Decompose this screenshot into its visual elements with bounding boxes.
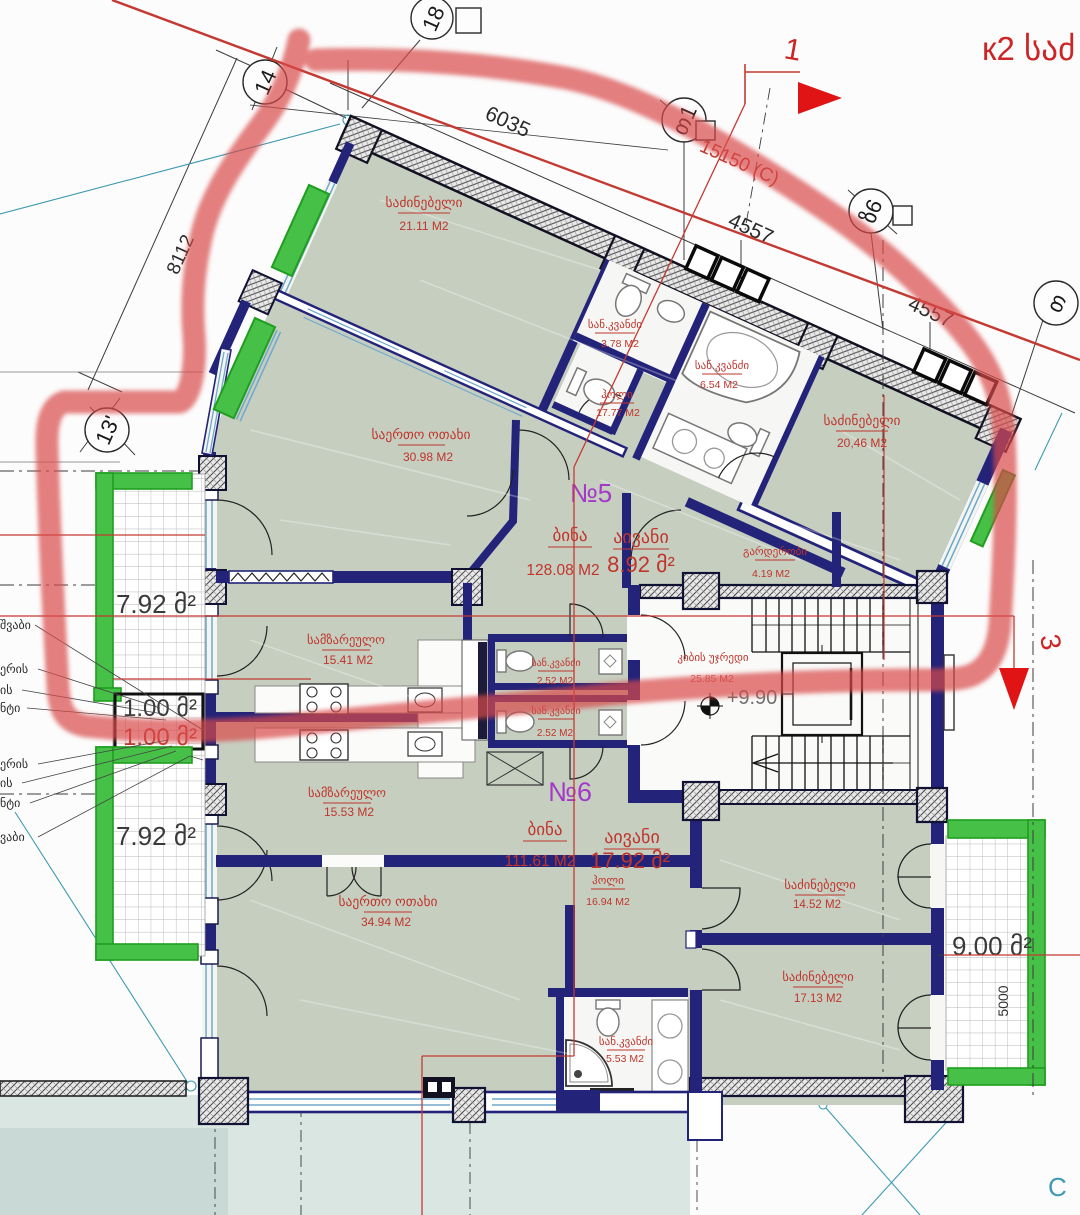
svg-text:8.92 მ²: 8.92 მ² xyxy=(607,552,675,577)
svg-text:5.53 М2: 5.53 М2 xyxy=(606,1053,644,1065)
svg-text:17.13 М2: 17.13 М2 xyxy=(794,993,842,1005)
svg-text:№5: №5 xyxy=(570,478,612,508)
svg-text:128.08 М2: 128.08 М2 xyxy=(526,562,599,579)
svg-text:21.11 М2: 21.11 М2 xyxy=(399,219,448,233)
svg-text:სან.კვანძი: სან.კვანძი xyxy=(531,657,580,669)
svg-text:საძინებელი: საძინებელი xyxy=(823,413,900,429)
svg-text:სან.კვანძი: სან.კვანძი xyxy=(588,318,642,331)
svg-text:ბინა: ბინა xyxy=(552,526,587,545)
svg-text:სამზარეულო: სამზარეულო xyxy=(308,786,386,801)
svg-text:20,46 М2: 20,46 М2 xyxy=(837,436,887,450)
svg-text:შვაბი: შვაბი xyxy=(0,618,31,632)
svg-text:საძინებელი: საძინებელი xyxy=(385,195,462,211)
svg-text:ჰოლი: ჰოლი xyxy=(592,874,624,887)
svg-text:საძინებელი: საძინებელი xyxy=(782,970,854,985)
svg-text:111.61 М2: 111.61 М2 xyxy=(505,853,576,870)
svg-text:საძინებელი: საძინებელი xyxy=(784,878,856,893)
svg-text:გარდერობი: გარდერობი xyxy=(743,545,807,558)
svg-text:9.00 მ²: 9.00 მ² xyxy=(952,931,1032,961)
svg-text:კიბის უჯრედი: კიბის უჯრედი xyxy=(677,651,749,664)
svg-text:С: С xyxy=(1048,1172,1067,1202)
svg-text:14.52 М2: 14.52 М2 xyxy=(793,899,841,911)
svg-text:2.52 М2: 2.52 М2 xyxy=(537,728,574,739)
svg-text:15.53 М2: 15.53 М2 xyxy=(324,805,374,819)
svg-text:15.41 М2: 15.41 М2 xyxy=(323,653,373,667)
svg-text:ის: ის xyxy=(0,776,12,790)
svg-text:17.77 М2: 17.77 М2 xyxy=(596,407,640,419)
svg-text:ბინა: ბინა xyxy=(527,820,562,839)
svg-text:5000: 5000 xyxy=(995,985,1011,1016)
svg-text:აივანი: აივანი xyxy=(604,827,660,848)
svg-text:17.92 მ²: 17.92 მ² xyxy=(590,848,670,873)
svg-text:ის: ის xyxy=(0,683,12,697)
svg-text:ერის: ერის xyxy=(0,662,28,676)
svg-text:საერთო ოთახი: საერთო ოთახი xyxy=(371,427,470,443)
svg-text:к2 საძ: к2 საძ xyxy=(982,30,1075,67)
svg-text:აივანი: აივანი xyxy=(613,527,669,548)
svg-text:ვაბი: ვაბი xyxy=(0,830,25,844)
svg-text:16.94 М2: 16.94 М2 xyxy=(586,896,630,908)
svg-text:6.54 М2: 6.54 М2 xyxy=(700,379,738,391)
svg-text:სან.კვანძი: სან.კვანძი xyxy=(599,1035,653,1048)
svg-text:ნტი: ნტი xyxy=(0,796,20,810)
svg-text:სამზარეულო: სამზარეულო xyxy=(307,633,385,648)
svg-text:4.19 М2: 4.19 М2 xyxy=(752,568,790,580)
svg-text:1.00 მ²: 1.00 მ² xyxy=(123,695,197,722)
svg-text:30.98 М2: 30.98 М2 xyxy=(403,450,453,464)
svg-text:7.92 მ²: 7.92 მ² xyxy=(116,589,196,619)
svg-text:2.52 М2: 2.52 М2 xyxy=(537,676,574,687)
svg-text:სან.კვანძი: სან.კვანძი xyxy=(695,359,749,372)
svg-text:34.94 М2: 34.94 М2 xyxy=(361,915,411,929)
svg-text:ერის: ერის xyxy=(0,757,28,771)
svg-text:№6: №6 xyxy=(548,777,592,807)
svg-text:საერთო ოთახი: საერთო ოთახი xyxy=(338,894,437,910)
svg-text:7.92 მ²: 7.92 მ² xyxy=(116,821,196,851)
svg-text:ნტი: ნტი xyxy=(0,701,20,715)
